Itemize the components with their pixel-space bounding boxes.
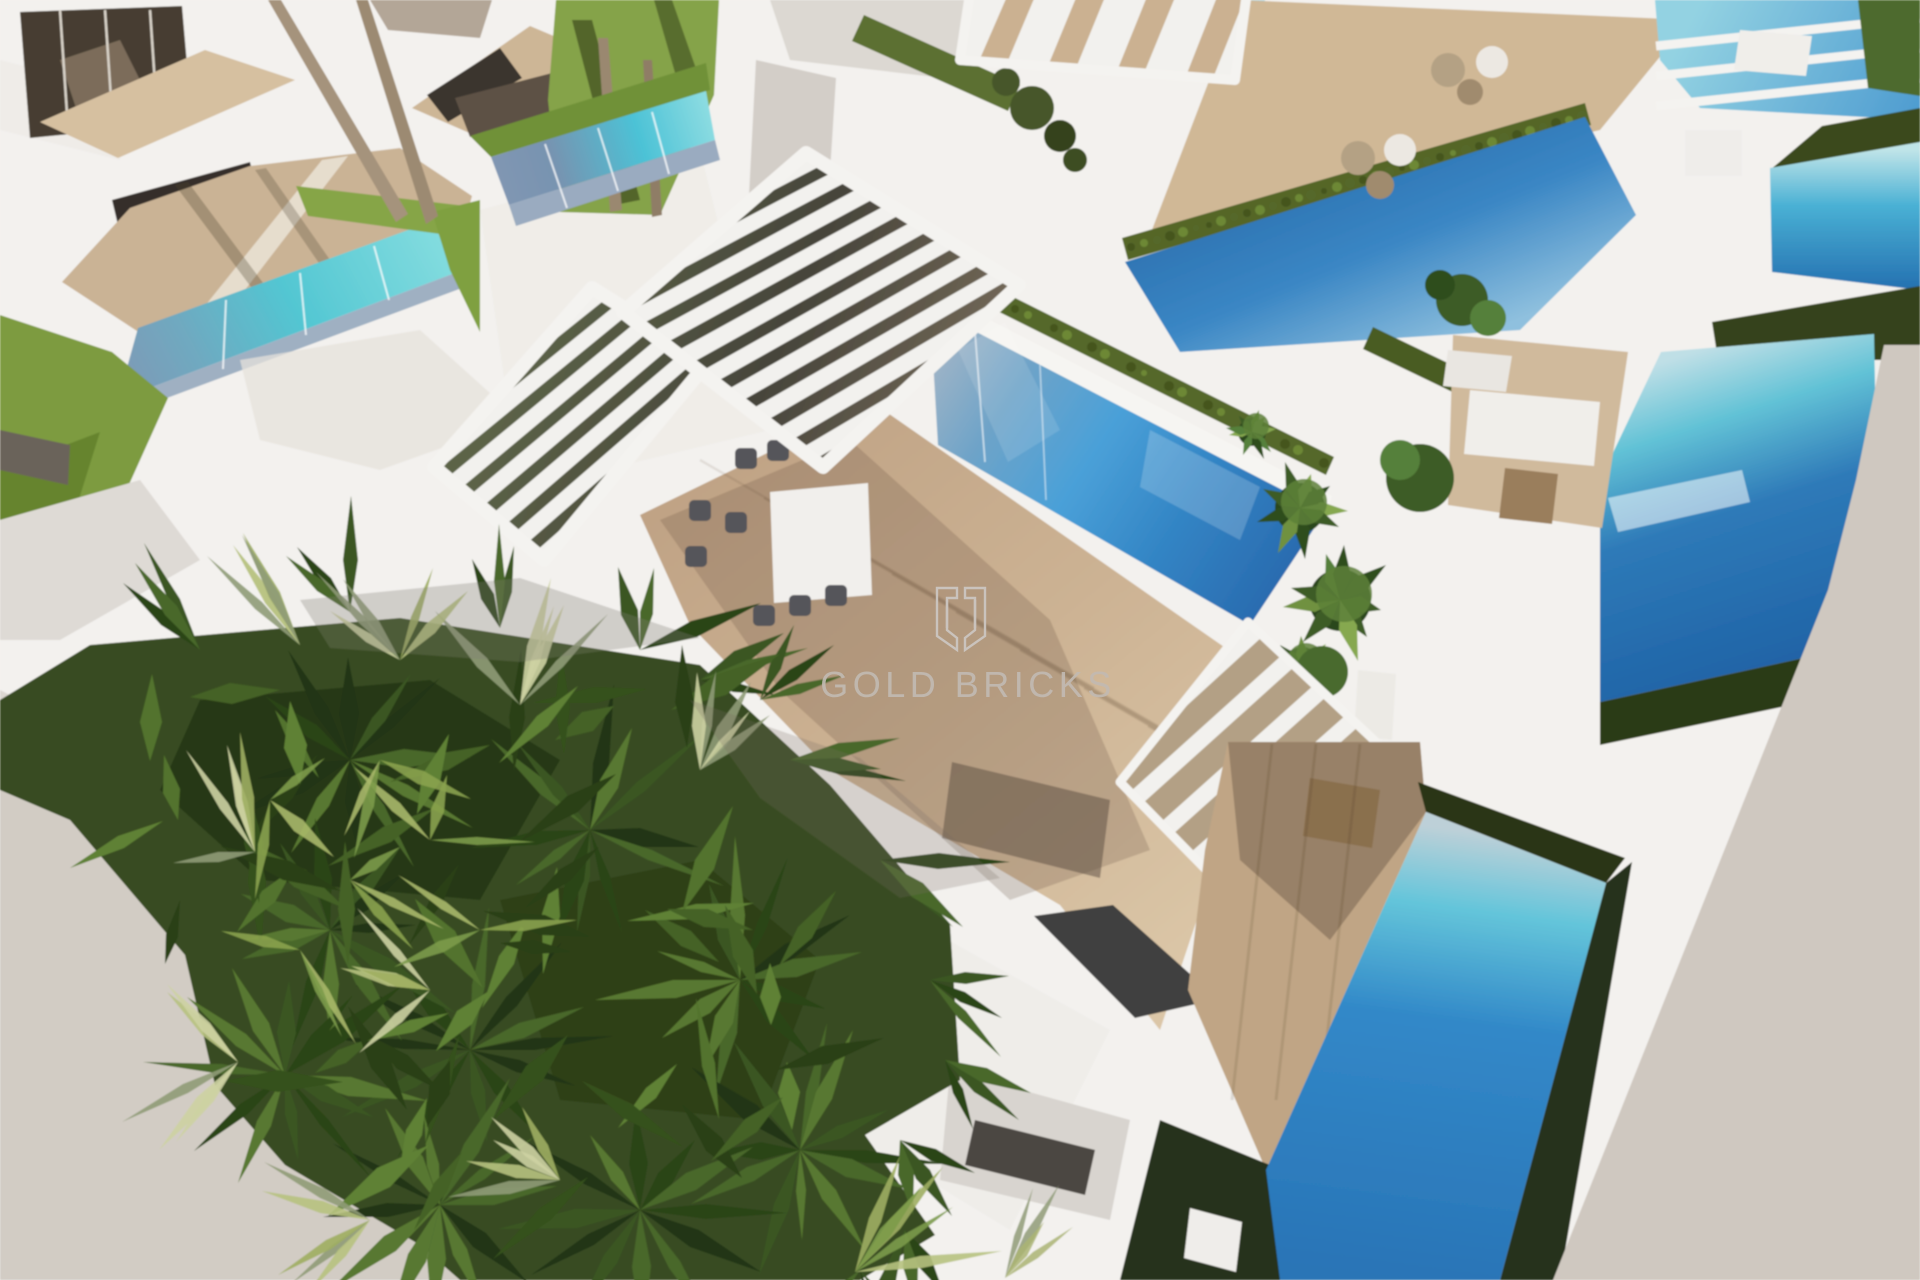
svg-text:GOLD BRICKS: GOLD BRICKS: [820, 664, 1116, 705]
